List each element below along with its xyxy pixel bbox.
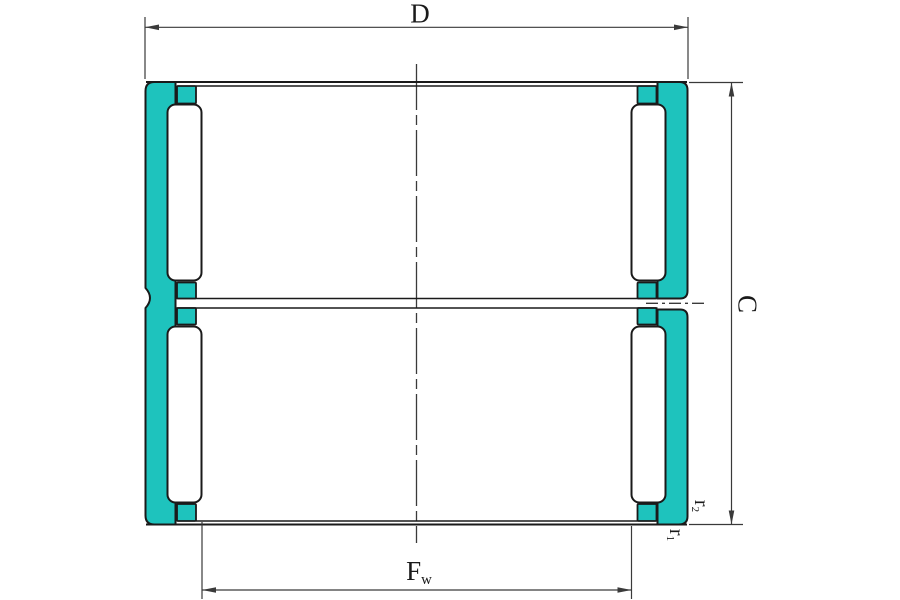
- cage-tab-top-right: [638, 86, 657, 104]
- label-r1-subscript: 1: [664, 536, 676, 542]
- label-radius-r1: r1: [664, 529, 686, 541]
- roller-top-right: [632, 105, 666, 281]
- cage-tab-midlower-left: [177, 308, 196, 325]
- dim-C-arrow-top: [729, 83, 735, 97]
- label-Fw-subscript: w: [421, 572, 432, 588]
- label-r2-subscript: 2: [689, 507, 701, 513]
- cage-tab-top-left: [177, 86, 196, 104]
- label-Fw-letter: F: [406, 556, 421, 586]
- roller-bottom-right: [632, 327, 666, 503]
- cage-tab-bottom-left: [177, 504, 196, 521]
- dim-C-arrow-bottom: [729, 511, 735, 525]
- label-radius-r2: r2: [689, 500, 711, 512]
- cage-tab-midlower-right: [638, 308, 657, 325]
- cage-tab-midupper-right: [638, 283, 657, 299]
- drawing-canvas: [0, 0, 900, 600]
- label-r2-letter: r: [690, 500, 712, 507]
- label-r1-letter: r: [665, 529, 687, 536]
- bearing-cross-section-drawing: D C Fw r2 r1: [0, 0, 900, 600]
- label-outer-diameter-D: D: [410, 1, 430, 28]
- cage-tab-midupper-left: [177, 283, 196, 299]
- dim-D-arrow-left: [145, 25, 159, 31]
- dim-Fw-arrow-left: [202, 587, 216, 593]
- dim-Fw-arrow-right: [618, 587, 632, 593]
- dim-D-arrow-right: [674, 25, 688, 31]
- roller-top-left: [168, 105, 202, 281]
- roller-bottom-left: [168, 327, 202, 503]
- label-width-C: C: [734, 295, 761, 313]
- label-raceway-Fw: Fw: [406, 558, 432, 588]
- cage-tab-bottom-right: [638, 504, 657, 521]
